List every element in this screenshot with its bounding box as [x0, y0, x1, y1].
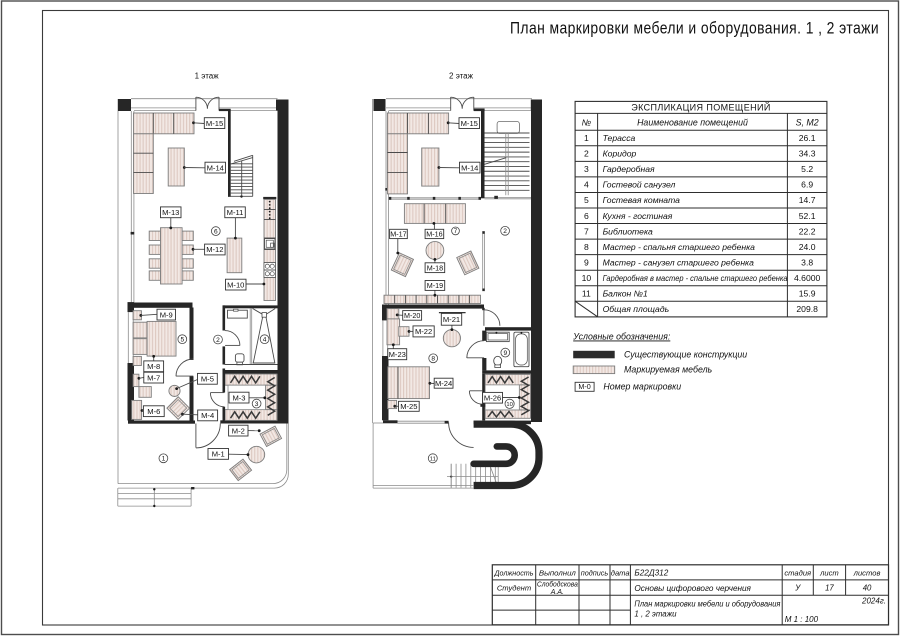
svg-text:М-16: М-16 — [426, 230, 442, 239]
svg-text:У: У — [794, 584, 801, 593]
svg-text:34.3: 34.3 — [799, 149, 816, 159]
svg-text:Должность: Должность — [494, 568, 534, 577]
svg-text:1 , 2 этажи: 1 , 2 этажи — [634, 610, 677, 619]
svg-text:Наименование помещений: Наименование помещений — [637, 117, 748, 127]
svg-text:М-19: М-19 — [427, 281, 443, 290]
svg-text:2: 2 — [503, 228, 507, 235]
svg-text:М-0: М-0 — [578, 382, 590, 391]
svg-text:8: 8 — [584, 242, 589, 252]
svg-text:Существующие конструкции: Существующие конструкции — [624, 349, 747, 359]
svg-text:Б22Д312: Б22Д312 — [634, 569, 668, 578]
svg-text:6: 6 — [584, 211, 589, 221]
svg-text:14.7: 14.7 — [799, 195, 816, 205]
svg-text:М-15: М-15 — [461, 119, 478, 128]
svg-text:№: № — [582, 117, 592, 127]
svg-text:М-2: М-2 — [232, 426, 245, 435]
svg-text:М-18: М-18 — [427, 263, 443, 272]
svg-text:17: 17 — [825, 584, 834, 593]
svg-text:Номер маркировки: Номер маркировки — [603, 382, 681, 392]
svg-text:15.9: 15.9 — [799, 289, 816, 299]
svg-text:План маркировки мебели и обору: План маркировки мебели и оборудования. 1… — [510, 19, 879, 38]
svg-text:10: 10 — [506, 402, 512, 408]
svg-text:6: 6 — [214, 228, 218, 235]
svg-text:Гардеробная: Гардеробная — [603, 164, 655, 174]
svg-text:9: 9 — [584, 257, 589, 267]
svg-text:План маркировки мебели и обору: План маркировки мебели и оборудования — [634, 600, 781, 609]
svg-text:10: 10 — [582, 273, 592, 283]
svg-text:М-1: М-1 — [212, 450, 225, 459]
svg-text:М-26: М-26 — [484, 393, 501, 402]
svg-text:Слободскова: Слободскова — [537, 581, 578, 589]
svg-text:52.1: 52.1 — [799, 211, 816, 221]
svg-text:22.2: 22.2 — [799, 226, 816, 236]
svg-text:Мастер - санузел старшего ребе: Мастер - санузел старшего ребенка — [603, 257, 755, 267]
svg-text:Условные обозначения:: Условные обозначения: — [572, 332, 671, 342]
svg-text:М-17: М-17 — [390, 230, 406, 239]
svg-text:М-10: М-10 — [227, 280, 244, 289]
svg-text:7: 7 — [584, 226, 589, 236]
svg-text:Коридор: Коридор — [603, 149, 637, 159]
svg-text:2 этаж: 2 этаж — [449, 71, 474, 80]
svg-text:Общая площадь: Общая площадь — [603, 304, 670, 314]
svg-text:стадия: стадия — [784, 568, 811, 577]
svg-text:Выполнил: Выполнил — [539, 568, 577, 577]
svg-text:М-20: М-20 — [404, 311, 420, 320]
svg-text:М-14: М-14 — [207, 163, 224, 172]
svg-text:М-5: М-5 — [201, 375, 214, 384]
svg-text:М-14: М-14 — [461, 163, 478, 172]
svg-text:М-21: М-21 — [443, 315, 460, 324]
svg-text:М-22: М-22 — [415, 327, 432, 336]
svg-text:11: 11 — [582, 289, 591, 299]
svg-text:40: 40 — [863, 584, 872, 593]
svg-text:М-6: М-6 — [147, 407, 160, 416]
svg-text:М-7: М-7 — [147, 373, 160, 382]
svg-text:209.8: 209.8 — [796, 304, 818, 314]
svg-text:М-25: М-25 — [400, 402, 417, 411]
svg-text:1: 1 — [584, 133, 589, 143]
svg-text:М-3: М-3 — [232, 393, 245, 402]
svg-text:Мастер - спальня старшего ребе: Мастер - спальня старшего ребенка — [603, 242, 756, 252]
svg-text:М-15: М-15 — [206, 119, 223, 128]
svg-text:3.8: 3.8 — [801, 257, 813, 267]
svg-text:Кухня - гостиная: Кухня - гостиная — [603, 211, 673, 221]
svg-text:Основы цифорового черчения: Основы цифорового черчения — [634, 584, 751, 593]
svg-text:6.9: 6.9 — [801, 180, 813, 190]
svg-text:М-23: М-23 — [389, 350, 406, 359]
svg-text:Маркируемая мебель: Маркируемая мебель — [624, 365, 713, 375]
svg-text:Гардеробная в мастер - спальне: Гардеробная в мастер - спальне старшего … — [603, 273, 788, 283]
svg-text:S, М2: S, М2 — [796, 117, 819, 127]
svg-text:8: 8 — [431, 356, 435, 363]
svg-text:7: 7 — [454, 228, 458, 235]
svg-text:Балкон №1: Балкон №1 — [603, 289, 648, 299]
svg-text:2: 2 — [216, 337, 220, 344]
svg-text:9: 9 — [503, 350, 507, 357]
svg-text:М-24: М-24 — [435, 379, 452, 388]
svg-text:дата: дата — [611, 568, 630, 577]
svg-text:2024г.: 2024г. — [861, 596, 886, 605]
svg-text:4: 4 — [263, 337, 267, 344]
svg-text:М-8: М-8 — [147, 362, 160, 371]
svg-text:3: 3 — [255, 401, 259, 408]
svg-text:М 1 : 100: М 1 : 100 — [785, 615, 819, 624]
svg-text:11: 11 — [430, 456, 436, 462]
svg-text:5: 5 — [584, 195, 589, 205]
svg-text:М-9: М-9 — [160, 310, 173, 319]
svg-text:Студент: Студент — [497, 584, 531, 593]
svg-text:4.6000: 4.6000 — [794, 273, 821, 283]
svg-text:Библиотека: Библиотека — [603, 226, 653, 236]
svg-text:Терасса: Терасса — [603, 133, 636, 143]
svg-text:Гостевая комната: Гостевая комната — [603, 195, 681, 205]
svg-text:А.А.: А.А. — [550, 589, 564, 596]
svg-text:М-13: М-13 — [162, 208, 179, 217]
svg-text:4: 4 — [584, 180, 589, 190]
svg-text:1: 1 — [162, 456, 166, 463]
svg-text:3: 3 — [584, 164, 589, 174]
svg-text:листов: листов — [853, 568, 881, 577]
svg-text:2: 2 — [584, 149, 589, 159]
svg-text:24.0: 24.0 — [799, 242, 816, 252]
svg-text:лист: лист — [819, 568, 839, 577]
svg-text:подпись: подпись — [581, 568, 609, 577]
svg-text:М-11: М-11 — [227, 208, 244, 217]
svg-text:5.2: 5.2 — [801, 164, 813, 174]
svg-text:26.1: 26.1 — [799, 133, 816, 143]
svg-text:ЭКСПЛИКАЦИЯ ПОМЕЩЕНИЙ: ЭКСПЛИКАЦИЯ ПОМЕЩЕНИЙ — [631, 102, 771, 113]
svg-text:М-12: М-12 — [206, 245, 223, 254]
svg-text:5: 5 — [180, 337, 184, 344]
svg-text:М-4: М-4 — [201, 411, 214, 420]
svg-text:Гостевой санузел: Гостевой санузел — [603, 180, 676, 190]
svg-text:1 этаж: 1 этаж — [195, 71, 220, 80]
